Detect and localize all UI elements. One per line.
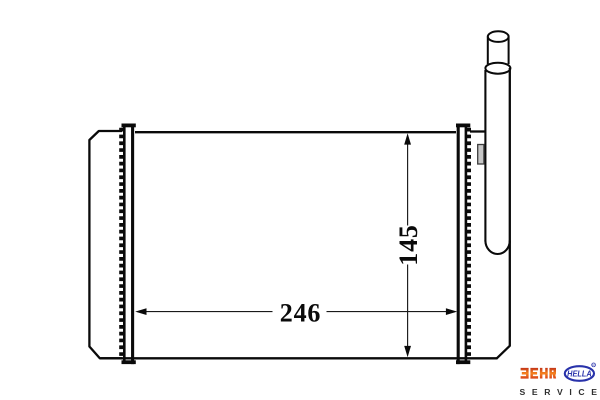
svg-text:HELLA: HELLA: [567, 369, 592, 378]
svg-text:SERVICE: SERVICE: [520, 387, 598, 397]
svg-text:246: 246: [280, 299, 321, 328]
svg-text:145: 145: [394, 224, 423, 265]
